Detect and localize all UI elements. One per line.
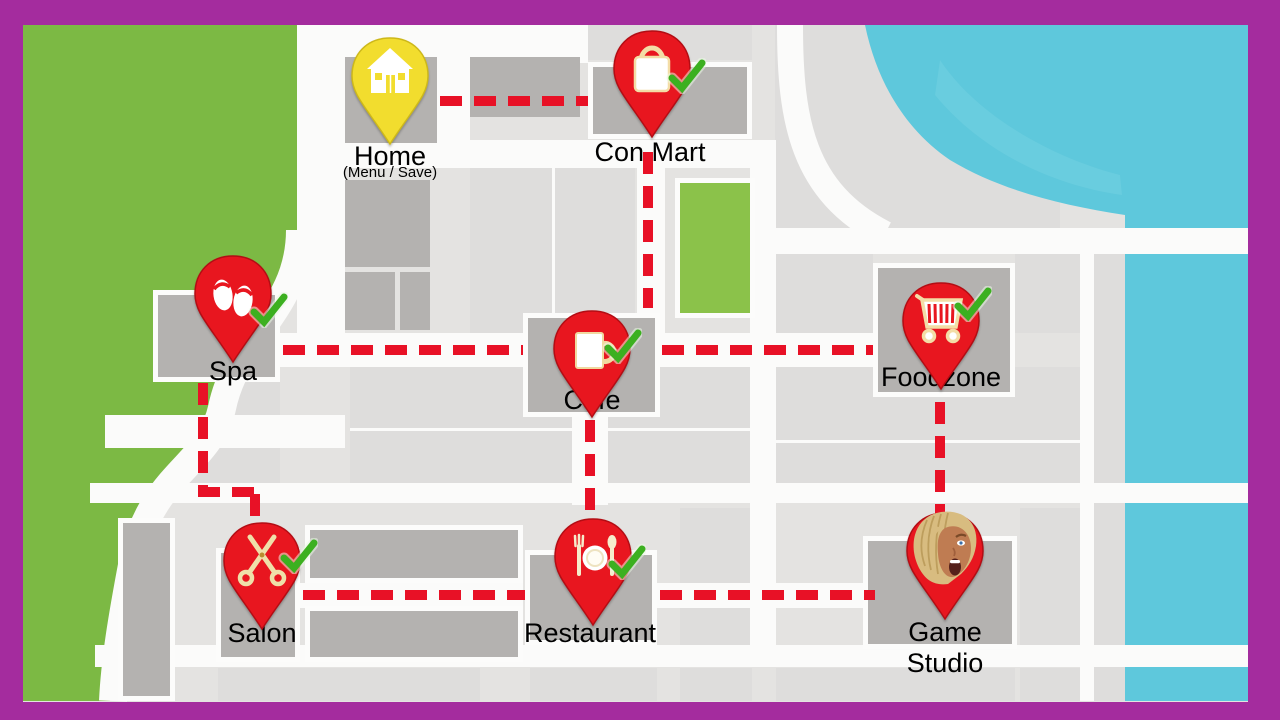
road-horizontal	[90, 483, 1248, 503]
pin-game-studio[interactable]	[903, 510, 987, 622]
frame-border-bottom	[0, 702, 1280, 720]
route-cafe-foodzone	[662, 345, 873, 355]
route-conmart-cafe	[643, 152, 653, 308]
building	[400, 272, 430, 330]
route-salon-restaurant	[303, 590, 525, 600]
building	[470, 57, 580, 117]
route-restaurant-gamestudio	[660, 590, 875, 600]
building	[345, 272, 395, 330]
check-icon-spa	[248, 292, 288, 328]
check-icon-con-mart	[666, 58, 706, 94]
label-con-mart: Con Mart	[594, 137, 705, 168]
curved-road	[790, 25, 885, 234]
town-map-screen: Home (Menu / Save) Con Mart Spa Cafe Foo…	[0, 0, 1280, 720]
check-icon-salon	[278, 538, 318, 574]
block-divider	[350, 428, 750, 431]
building	[305, 525, 523, 583]
label-home-sub: (Menu / Save)	[343, 164, 437, 181]
check-icon-foodzone	[952, 286, 992, 322]
road-horizontal	[105, 415, 345, 448]
label-game-studio-line2: Studio	[907, 648, 984, 679]
building	[345, 180, 430, 267]
check-icon-cafe	[602, 328, 642, 364]
frame-border-right	[1248, 0, 1280, 720]
frame-border-left	[0, 0, 23, 720]
pin-home[interactable]	[348, 35, 432, 147]
check-icon-restaurant	[606, 544, 646, 580]
frame-border-top	[0, 0, 1280, 25]
block-divider	[776, 440, 1080, 443]
pin-salon[interactable]	[220, 520, 304, 632]
route-cafe-restaurant	[585, 420, 595, 518]
route-home-conmart	[440, 96, 588, 106]
road-horizontal	[776, 228, 1248, 254]
park-area	[675, 178, 755, 318]
route-spa-cafe	[283, 345, 523, 355]
route-spa-south	[198, 383, 208, 493]
road-vertical	[1080, 254, 1094, 701]
route-spa-salon	[250, 494, 260, 522]
building	[305, 606, 523, 662]
route-foodzone-gamestudio	[935, 402, 945, 518]
building	[118, 518, 175, 701]
road-vertical	[297, 25, 345, 333]
